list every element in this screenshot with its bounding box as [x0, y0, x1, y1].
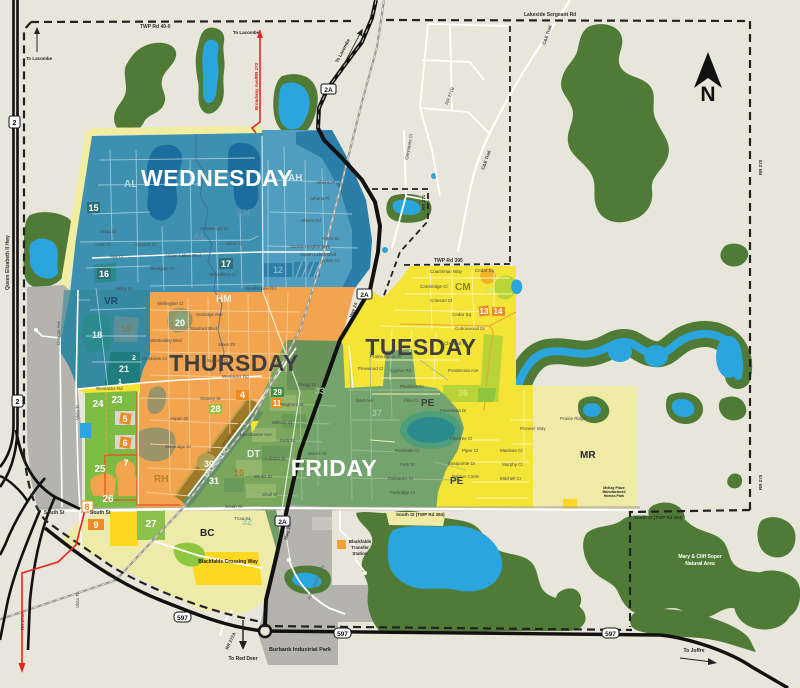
svg-text:Station: Station [352, 551, 368, 556]
svg-text:36: 36 [458, 388, 468, 398]
svg-text:Womacks Rd: Womacks Rd [96, 386, 123, 391]
svg-text:9: 9 [93, 520, 98, 530]
svg-text:Park: Park [432, 430, 442, 435]
svg-text:RH: RH [154, 474, 168, 485]
svg-text:To Lacombe: To Lacombe [233, 30, 260, 35]
svg-text:South St (TWP Rd 394): South St (TWP Rd 394) [396, 512, 445, 517]
svg-text:Park St: Park St [280, 438, 296, 443]
svg-text:Prairie Ridge Ar: Prairie Ridge Ar [370, 354, 402, 359]
svg-text:31: 31 [209, 476, 219, 486]
svg-text:Lakeside Sergeant Rd: Lakeside Sergeant Rd [524, 12, 576, 18]
svg-text:20: 20 [175, 318, 185, 328]
svg-text:VR: VR [104, 296, 119, 307]
svg-text:TWP Rd 40-0: TWP Rd 40-0 [140, 24, 171, 30]
svg-text:34: 34 [484, 286, 494, 296]
svg-text:Arlen Cl: Arlen Cl [95, 242, 111, 247]
svg-text:Centennial: Centennial [428, 424, 450, 429]
svg-text:Crimson Cl: Crimson Cl [430, 298, 452, 303]
svg-text:37: 37 [372, 408, 382, 418]
svg-text:RR 270: RR 270 [758, 159, 763, 175]
svg-text:Athena Pl: Athena Pl [310, 196, 330, 201]
svg-text:1: 1 [118, 379, 122, 386]
svg-text:13: 13 [480, 307, 489, 316]
svg-text:Weelbrooke Rd: Weelbrooke Rd [245, 286, 276, 291]
svg-text:Cedar Sq: Cedar Sq [452, 312, 472, 317]
svg-text:Homes Park: Homes Park [604, 494, 624, 498]
svg-text:Arrowwood Cl: Arrowwood Cl [200, 226, 228, 231]
svg-text:MR: MR [580, 450, 596, 461]
svg-text:17: 17 [221, 259, 231, 269]
svg-text:Moore St: Moore St [308, 451, 327, 456]
svg-text:Waghorn St: Waghorn St [280, 402, 304, 407]
svg-text:Adina Cl: Adina Cl [225, 241, 242, 246]
svg-text:WEDNESDAY: WEDNESDAY [141, 165, 293, 191]
svg-text:8: 8 [84, 502, 89, 512]
svg-text:Cedar Sq: Cedar Sq [475, 268, 495, 273]
svg-text:Athens Rd: Athens Rd [300, 218, 322, 223]
svg-text:Broadway Ave/RR 272: Broadway Ave/RR 272 [254, 62, 259, 110]
svg-text:Duncan Ave: Duncan Ave [56, 320, 61, 345]
svg-text:16: 16 [99, 269, 109, 279]
svg-text:Aspen Lakes Blvd: Aspen Lakes Blvd [300, 252, 337, 257]
svg-text:TWP Rd 395: TWP Rd 395 [434, 258, 463, 264]
svg-text:Transfer: Transfer [351, 545, 369, 550]
svg-text:29: 29 [273, 388, 282, 397]
svg-text:Eastpointe Dr: Eastpointe Dr [448, 461, 476, 466]
svg-text:CM: CM [455, 282, 471, 293]
svg-text:597: 597 [605, 631, 616, 638]
svg-text:N: N [700, 83, 715, 106]
svg-text:Aztec St: Aztec St [322, 236, 340, 241]
svg-text:Plumtree Cr: Plumtree Cr [400, 384, 425, 389]
svg-text:Sunridge Ave: Sunridge Ave [196, 312, 223, 317]
svg-text:Pine Cr: Pine Cr [404, 398, 420, 403]
svg-text:597: 597 [177, 615, 188, 622]
svg-text:Parkridge Cr: Parkridge Cr [390, 490, 416, 495]
svg-text:AL: AL [193, 232, 206, 243]
svg-text:Trout St: Trout St [234, 516, 251, 521]
svg-text:Queen Elizabeth II Hwy: Queen Elizabeth II Hwy [5, 235, 11, 290]
svg-text:Winks St: Winks St [254, 474, 273, 479]
svg-text:Silver Dr: Silver Dr [218, 342, 236, 347]
svg-text:Palisades St: Palisades St [388, 476, 414, 481]
svg-text:21: 21 [119, 364, 129, 374]
svg-text:Natural Area: Natural Area [685, 561, 715, 567]
svg-text:26: 26 [102, 494, 114, 505]
svg-text:Stanley St: Stanley St [200, 396, 221, 401]
svg-text:To Red Deer: To Red Deer [228, 656, 257, 662]
svg-text:10: 10 [234, 468, 244, 478]
svg-text:South St (TWP Rd 394): South St (TWP Rd 394) [634, 515, 683, 520]
svg-text:Aurora Heights Blvd: Aurora Heights Blvd [290, 244, 331, 249]
svg-text:Womacks Rd: Womacks Rd [222, 374, 249, 379]
svg-text:AH: AH [288, 173, 302, 184]
svg-text:19: 19 [121, 324, 131, 334]
svg-text:Vista Tr: Vista Tr [75, 404, 80, 420]
svg-text:2A: 2A [360, 292, 369, 299]
svg-text:24: 24 [92, 399, 104, 410]
svg-text:27: 27 [145, 519, 157, 530]
svg-text:Cottonwood Dr: Cottonwood Dr [455, 326, 486, 331]
svg-text:12: 12 [273, 265, 283, 275]
svg-text:2A: 2A [278, 519, 287, 526]
svg-text:Stanford Blvd: Stanford Blvd [190, 326, 218, 331]
svg-text:Westridge Dr: Westridge Dr [165, 444, 192, 449]
svg-text:To Lacombe: To Lacombe [26, 56, 53, 61]
svg-text:THURSDAY: THURSDAY [169, 350, 299, 376]
svg-text:Anna Cl: Anna Cl [100, 229, 116, 234]
svg-text:Pinetree Cl: Pinetree Cl [450, 436, 472, 441]
svg-text:Valley Cr: Valley Cr [115, 286, 133, 291]
svg-text:Shull St: Shull St [262, 492, 278, 497]
svg-text:HM: HM [216, 294, 232, 305]
svg-text:597: 597 [337, 631, 348, 638]
svg-text:RR 271: RR 271 [421, 194, 426, 210]
svg-text:Pondside Cr: Pondside Cr [395, 448, 420, 453]
svg-text:Blackfalds Crossing Way: Blackfalds Crossing Way [198, 559, 258, 565]
svg-text:Park St: Park St [400, 462, 416, 467]
svg-text:Blackfalds: Blackfalds [349, 539, 372, 544]
svg-text:Maclean Cl: Maclean Cl [500, 448, 523, 453]
svg-text:2: 2 [13, 120, 17, 127]
svg-text:Pioneer Way: Pioneer Way [520, 426, 546, 431]
svg-text:East Ave: East Ave [356, 398, 374, 403]
svg-text:South St: South St [225, 504, 243, 509]
svg-text:Coachman Way: Coachman Way [430, 269, 463, 274]
svg-text:2: 2 [132, 355, 136, 362]
svg-text:Ava Cr: Ava Cr [110, 254, 124, 259]
svg-text:Indiana St: Indiana St [265, 456, 286, 461]
svg-text:2: 2 [16, 399, 20, 406]
svg-text:Burbank Industrial Park: Burbank Industrial Park [269, 647, 332, 653]
svg-text:38: 38 [482, 390, 492, 400]
svg-text:Westgate Cr: Westgate Cr [150, 266, 175, 271]
svg-text:Piper Cl: Piper Cl [462, 448, 478, 453]
svg-text:Vista Tr: Vista Tr [75, 592, 80, 608]
svg-text:15: 15 [88, 203, 98, 213]
svg-text:Athens Pl: Athens Pl [316, 180, 335, 185]
svg-text:Almond Cr: Almond Cr [135, 242, 157, 247]
svg-text:28: 28 [210, 404, 220, 414]
svg-text:BC: BC [200, 528, 214, 539]
svg-text:To Joffre: To Joffre [683, 648, 704, 654]
svg-text:Lansdowne Ave: Lansdowne Ave [240, 432, 272, 437]
svg-text:2A: 2A [324, 87, 333, 94]
svg-text:Westview Cr: Westview Cr [142, 356, 168, 361]
svg-text:Aspen Lakes Blvd: Aspen Lakes Blvd [165, 253, 202, 258]
svg-text:Panorama Dr: Panorama Dr [440, 408, 467, 413]
svg-text:Mitchell Cr: Mitchell Cr [500, 476, 522, 481]
svg-text:RR 270: RR 270 [758, 474, 763, 490]
svg-text:Churchill Pl: Churchill Pl [444, 341, 467, 346]
svg-text:South St: South St [90, 510, 111, 516]
svg-text:RR 273A: RR 273A [20, 611, 25, 630]
svg-text:South St: South St [44, 510, 65, 516]
svg-text:4: 4 [240, 390, 245, 400]
svg-text:Woodbine Cl: Woodbine Cl [210, 272, 236, 277]
svg-text:Prairie Ridge: Prairie Ridge [560, 416, 587, 421]
svg-text:14: 14 [494, 307, 503, 316]
svg-text:Gregg St: Gregg St [298, 382, 317, 387]
svg-text:FRIDAY: FRIDAY [291, 455, 378, 481]
svg-text:Mary & Cliff Soper: Mary & Cliff Soper [678, 554, 721, 560]
svg-text:Wellington Cl: Wellington Cl [157, 301, 183, 306]
svg-text:Aspen Dr: Aspen Dr [170, 416, 189, 421]
svg-text:18: 18 [92, 330, 102, 340]
svg-text:25: 25 [94, 464, 106, 475]
svg-text:33: 33 [315, 386, 325, 396]
svg-text:Ponderosa Ave: Ponderosa Ave [448, 368, 479, 373]
svg-text:Willson St: Willson St [272, 420, 293, 425]
svg-text:Sunrise Cl: Sunrise Cl [207, 358, 228, 363]
svg-text:Palmer Circle: Palmer Circle [452, 474, 480, 479]
svg-text:Cambridge Cl: Cambridge Cl [420, 284, 448, 289]
svg-text:AH: AH [236, 208, 250, 219]
svg-text:Murphy Cl: Murphy Cl [502, 462, 523, 467]
svg-text:5: 5 [122, 414, 127, 424]
svg-text:DT: DT [247, 449, 260, 460]
svg-text:6: 6 [122, 438, 127, 448]
svg-text:PE: PE [421, 398, 435, 409]
svg-text:Aztec Cr: Aztec Cr [322, 258, 340, 263]
svg-text:23: 23 [111, 395, 123, 406]
svg-text:Westvalley Blvd: Westvalley Blvd [150, 338, 182, 343]
svg-text:7: 7 [123, 458, 128, 468]
svg-text:AL: AL [124, 179, 137, 190]
svg-text:Pinewood Cl: Pinewood Cl [358, 366, 383, 371]
svg-text:Cyprus Rd: Cyprus Rd [390, 368, 412, 373]
